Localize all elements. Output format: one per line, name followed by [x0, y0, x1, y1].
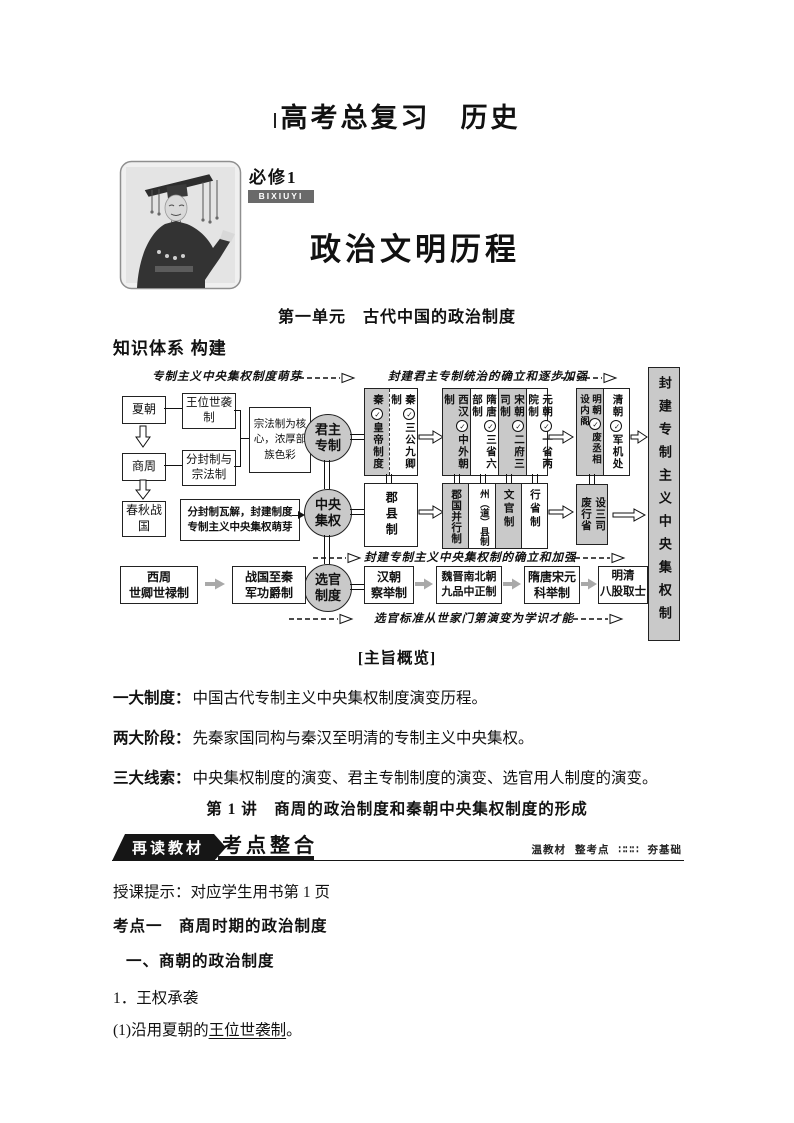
group-han-yuan-systems: 西汉✓中外朝制 隋唐✓三省六部制 宋朝✓二府三司制 元朝✓一省两院制 [442, 388, 548, 476]
overview-item: 一大制度：中国古代专制主义中央集权制度演变历程。 [113, 686, 683, 708]
double-line-connector [350, 434, 364, 440]
lecture-title: 第 1 讲 商周的政治制度和秦朝中央集权制度的形成 [0, 797, 794, 819]
emperor-portrait-drawing [119, 160, 242, 290]
check-icon: ✓ [456, 420, 468, 432]
document-page: 高考总复习 历史 [0, 0, 794, 1123]
era-label: 隋唐 [485, 394, 496, 418]
era-label: 元朝 [541, 394, 552, 418]
tab-underline [218, 856, 314, 860]
era-label: 西汉 [457, 394, 468, 418]
banner-note: 温教材整考点∷∷∷夯基础 [522, 842, 682, 857]
box-selection-suitang: 隋唐宋元科举制 [524, 566, 580, 604]
teaching-tip: 授课提示：对应学生用书第 1 页 [113, 880, 330, 902]
box-shang-zhou: 商周 [122, 453, 166, 481]
hollow-arrow-right-icon [548, 429, 574, 445]
dashed-arrow-icon [288, 613, 354, 625]
double-line-connector [480, 474, 486, 483]
knowledge-diagram: 专制主义中央集权制度萌芽 封建君主专制统治的确立和逐步加强 夏朝 王位世袭制 商… [112, 363, 688, 637]
connector-line [241, 438, 249, 439]
dashed-arrow-icon [572, 613, 624, 625]
unit-title: 第一单元 古代中国的政治制度 [0, 303, 794, 327]
box-selection-zhanguo: 战国至秦军功爵制 [232, 566, 306, 604]
box-collapse-note: 分封制瓦解，封建制度专制主义中央集权萌芽 [180, 499, 300, 541]
check-icon: ✓ [589, 418, 601, 430]
system-column: 行省制 [521, 484, 547, 548]
overview-item: 三大线索：中央集权制度的演变、君主专制制度的演变、选官用人制度的演变。 [113, 766, 683, 788]
circle-monarchy: 君主专制 [304, 414, 352, 462]
overview-title: [主旨概览] [0, 646, 794, 668]
gray-arrow-icon [204, 577, 226, 591]
connector-line [164, 408, 182, 409]
system-column: 州（道）县制 [468, 484, 494, 548]
item-number-heading: 1．王权承袭 [113, 986, 198, 1008]
tab-title: 考点整合 [222, 829, 318, 858]
reform-line: 设三司 [592, 497, 606, 532]
dashed-arrow-icon [574, 552, 626, 564]
box-xia-dynasty: 夏朝 [122, 396, 166, 424]
system-column: 郡国并行制 [443, 484, 468, 548]
era-label: 清朝 [611, 394, 622, 418]
double-line-connector [350, 509, 364, 515]
box-fengjian-zongfa: 分封制与宗法制 [182, 450, 236, 486]
ribbon-tab: 再读教材 [112, 834, 226, 861]
page-title-text: 高考总复习 历史 [281, 103, 521, 133]
dynasty-column: 明朝✓废丞相设内阁 [577, 389, 603, 475]
hollow-arrow-right-icon [548, 504, 574, 520]
gray-arrow-icon [502, 577, 522, 591]
dashed-arrow-icon [298, 372, 356, 384]
section-banner: 再读教材 考点整合 温教材整考点∷∷∷夯基础 [112, 833, 684, 861]
box-spring-autumn: 春秋战国 [122, 501, 166, 537]
dashed-arrow-icon [312, 552, 362, 564]
check-icon: ✓ [512, 420, 524, 432]
dots-icon: ∷∷∷ [618, 845, 638, 856]
emperor-portrait-image [119, 160, 242, 290]
box-junxian-system: 郡县制 [364, 483, 418, 547]
era-label: 秦 [404, 394, 415, 406]
era-label: 宋朝 [513, 394, 524, 418]
item-text: (1)沿用夏朝的王位世袭制。 [113, 1018, 302, 1040]
system-label: 皇帝制度 [372, 422, 383, 470]
check-icon: ✓ [371, 408, 383, 420]
double-line-connector [532, 474, 538, 483]
page-title: 高考总复习 历史 [0, 96, 794, 135]
annotation-bottom: 选官标准从世家门第演变为学识才能 [374, 610, 574, 626]
box-hereditary-system: 王位世袭制 [182, 393, 236, 429]
hollow-arrow-right-icon [630, 429, 648, 445]
box-result-feudal-system: 封建专制主义中央集权制 [648, 367, 680, 641]
annotation-top-left: 专制主义中央集权制度萌芽 [152, 368, 302, 384]
dynasty-column: 宋朝✓二府三司制 [498, 389, 526, 475]
system-label: 军机处 [611, 434, 622, 470]
check-icon: ✓ [403, 408, 415, 420]
box-selection-xizhou: 西周世卿世禄制 [120, 566, 198, 604]
check-icon: ✓ [484, 420, 496, 432]
dynasty-column: 秦✓三公九卿制 [389, 389, 417, 475]
module-badge: BIXIUYI [248, 190, 314, 203]
hollow-arrow-right-icon [418, 504, 444, 520]
connector-line [164, 465, 182, 466]
box-zongfa-note: 宗法制为核心，浓厚部族色彩 [249, 407, 311, 473]
down-arrow-icon [135, 479, 151, 501]
gray-arrow-icon [414, 577, 434, 591]
sub-heading: 一、商朝的政治制度 [126, 949, 275, 971]
dashed-arrow-icon [560, 372, 618, 384]
box-selection-weijin: 魏晋南北朝九品中正制 [436, 566, 502, 604]
box-selection-mingqing: 明清八股取士 [598, 566, 648, 604]
module-label: 必修1 [249, 163, 298, 188]
double-line-connector [350, 584, 364, 590]
annotation-middle: 封建专制主义中央集权制的确立和加强 [364, 549, 577, 565]
double-line-connector [506, 474, 512, 483]
double-line-connector [324, 460, 330, 489]
group-local-systems: 郡国并行制 州（道）县制 文官制 行省制 [442, 483, 548, 549]
reform-line: 废行省 [578, 497, 592, 532]
hollow-arrow-right-icon [612, 507, 646, 523]
double-line-connector [454, 474, 460, 483]
overview-item: 两大阶段：先秦家国同构与秦汉至明清的专制主义中央集权。 [113, 726, 683, 748]
box-ming-reform: 设三司废行省 [576, 484, 608, 545]
underlined-term: 王位世袭制 [209, 1022, 287, 1039]
knowledge-heading: 知识体系 构建 [113, 334, 227, 359]
circle-selection: 选官制度 [304, 564, 352, 612]
group-ming-qing-systems: 明朝✓废丞相设内阁 清朝✓军机处 [576, 388, 630, 476]
double-line-connector [386, 474, 392, 483]
dynasty-column: 隋唐✓三省六部制 [470, 389, 498, 475]
book-title: 政治文明历程 [310, 224, 520, 269]
dynasty-column: 西汉✓中外朝制 [443, 389, 470, 475]
hollow-arrow-right-icon [418, 429, 444, 445]
edge-tick-mark [274, 113, 276, 128]
group-qin-systems: 秦✓皇帝制度 秦✓三公九卿制 [364, 388, 418, 476]
circle-centralization: 中央集权 [304, 489, 352, 537]
dynasty-column: 秦✓皇帝制度 [365, 389, 389, 475]
system-column: 文官制 [495, 484, 521, 548]
down-arrow-icon [135, 425, 151, 449]
double-line-connector [589, 474, 595, 484]
annotation-top-right: 封建君主专制统治的确立和逐步加强 [388, 368, 588, 384]
check-icon: ✓ [610, 420, 622, 432]
dynasty-column: 清朝✓军机处 [603, 389, 629, 475]
box-selection-han: 汉朝察举制 [364, 566, 414, 604]
gray-arrow-icon [580, 577, 598, 591]
era-label: 秦 [372, 394, 383, 406]
era-label: 明朝 [590, 394, 600, 416]
exam-point-heading: 考点一 商周时期的政治制度 [113, 914, 328, 936]
